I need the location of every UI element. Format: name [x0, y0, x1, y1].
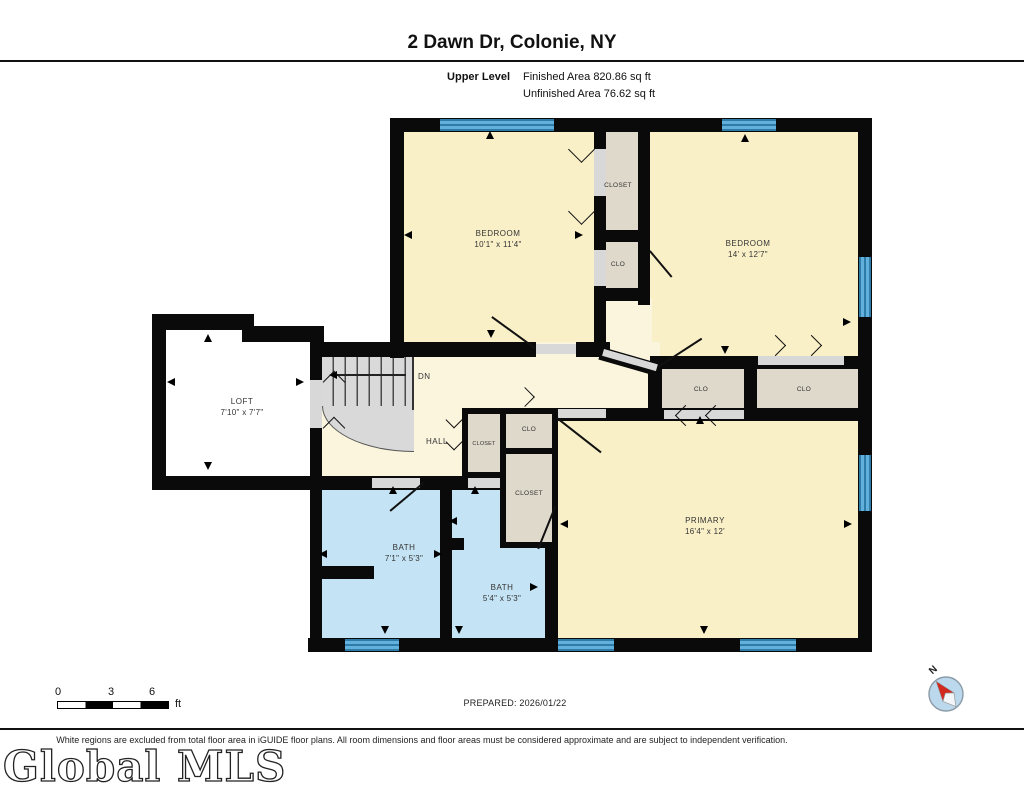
stairs-edge	[412, 348, 414, 410]
direction-arrow-icon	[449, 517, 457, 525]
wall-segment	[322, 342, 536, 357]
direction-arrow-icon	[389, 486, 397, 494]
scale-unit: ft	[175, 698, 181, 710]
window	[722, 119, 776, 131]
room-name: BEDROOM	[476, 229, 521, 238]
room-dims: 5'4" x 5'3"	[452, 593, 552, 604]
direction-arrow-icon	[296, 378, 304, 386]
window	[558, 639, 614, 651]
direction-arrow-icon	[204, 462, 212, 470]
window	[345, 639, 399, 651]
direction-arrow-icon	[696, 416, 704, 424]
window	[859, 455, 871, 511]
direction-arrow-icon	[530, 583, 538, 591]
label-stairs-dn: DN	[418, 371, 448, 382]
wall-segment	[152, 476, 324, 490]
direction-arrow-icon	[486, 131, 494, 139]
direction-arrow-icon	[700, 626, 708, 634]
door-sill	[310, 380, 322, 428]
window	[740, 639, 796, 651]
wall-segment	[152, 314, 166, 490]
wall-segment	[858, 118, 872, 652]
direction-arrow-icon	[844, 520, 852, 528]
wall-segment	[594, 230, 650, 242]
direction-arrow-icon	[204, 334, 212, 342]
direction-arrow-icon	[843, 318, 851, 326]
direction-arrow-icon	[487, 330, 495, 338]
stairs-run-line	[336, 374, 406, 376]
scale-tick-3: 3	[108, 686, 114, 698]
scale-tick-0: 0	[55, 686, 61, 698]
direction-arrow-icon	[721, 346, 729, 354]
wall-segment	[310, 330, 322, 652]
room-dims: 16'4" x 12'	[635, 526, 775, 537]
footer-rule	[0, 728, 1024, 730]
room-name: LOFT	[231, 397, 253, 406]
wall-segment	[322, 566, 374, 579]
room-name: BATH	[393, 543, 416, 552]
label-clo-right: CLO	[774, 385, 834, 394]
floor-plan-page: 2 Dawn Dr, Colonie, NY Upper Level Finis…	[0, 0, 1024, 791]
label-bedroom2: BEDROOM 14' x 12'7"	[678, 238, 818, 260]
direction-arrow-icon	[167, 378, 175, 386]
finished-area-label: Finished Area 820.86 sq ft	[523, 71, 651, 83]
room-dims: 10'1" x 11'4"	[428, 239, 568, 250]
wall-segment	[242, 326, 324, 342]
compass-icon: N	[914, 660, 974, 720]
direction-arrow-icon	[575, 231, 583, 239]
door-sill	[536, 344, 576, 354]
direction-arrow-icon	[434, 550, 442, 558]
direction-arrow-icon	[381, 626, 389, 634]
wall-segment	[638, 131, 650, 305]
door-sill	[758, 356, 844, 365]
room-dims: 7'10" x 7'7"	[182, 407, 302, 418]
label-hall: HALL	[407, 436, 467, 447]
room-name: BATH	[491, 583, 514, 592]
window	[440, 119, 554, 131]
direction-arrow-icon	[455, 626, 463, 634]
wall-segment	[594, 288, 650, 301]
room-dims: 14' x 12'7"	[678, 249, 818, 260]
label-primary: PRIMARY 16'4" x 12'	[635, 515, 775, 537]
label-bedroom1: BEDROOM 10'1" x 11'4"	[428, 228, 568, 250]
prepared-date: PREPARED: 2026/01/22	[415, 698, 615, 708]
label-loft: LOFT 7'10" x 7'7"	[182, 396, 302, 418]
header-rule	[0, 60, 1024, 62]
direction-arrow-icon	[471, 486, 479, 494]
level-label: Upper Level	[330, 71, 510, 83]
wall-segment	[152, 314, 254, 330]
wall-segment	[594, 131, 606, 149]
room-name: PRIMARY	[685, 516, 725, 525]
label-clo-left: CLO	[671, 385, 731, 394]
direction-arrow-icon	[404, 231, 412, 239]
label-clo-small: CLO	[509, 425, 549, 434]
door-sill	[550, 409, 606, 418]
global-mls-logo: Global MLS	[3, 742, 286, 791]
page-title: 2 Dawn Dr, Colonie, NY	[0, 32, 1024, 54]
label-closet-mid: CLOSET	[507, 489, 551, 498]
wall-segment	[390, 118, 404, 358]
label-closet-small: CLOSET	[464, 441, 504, 449]
scale-bar	[57, 701, 169, 709]
label-clo-top: CLO	[598, 260, 638, 269]
label-closet-top: CLOSET	[596, 181, 640, 190]
wall-segment	[744, 356, 757, 421]
window	[859, 257, 871, 317]
direction-arrow-icon	[560, 520, 568, 528]
direction-arrow-icon	[741, 134, 749, 142]
room-name: BEDROOM	[726, 239, 771, 248]
direction-arrow-icon	[319, 550, 327, 558]
scale-tick-6: 6	[149, 686, 155, 698]
unfinished-area-label: Unfinished Area 76.62 sq ft	[523, 88, 655, 100]
compass-north-label: N	[927, 664, 940, 677]
